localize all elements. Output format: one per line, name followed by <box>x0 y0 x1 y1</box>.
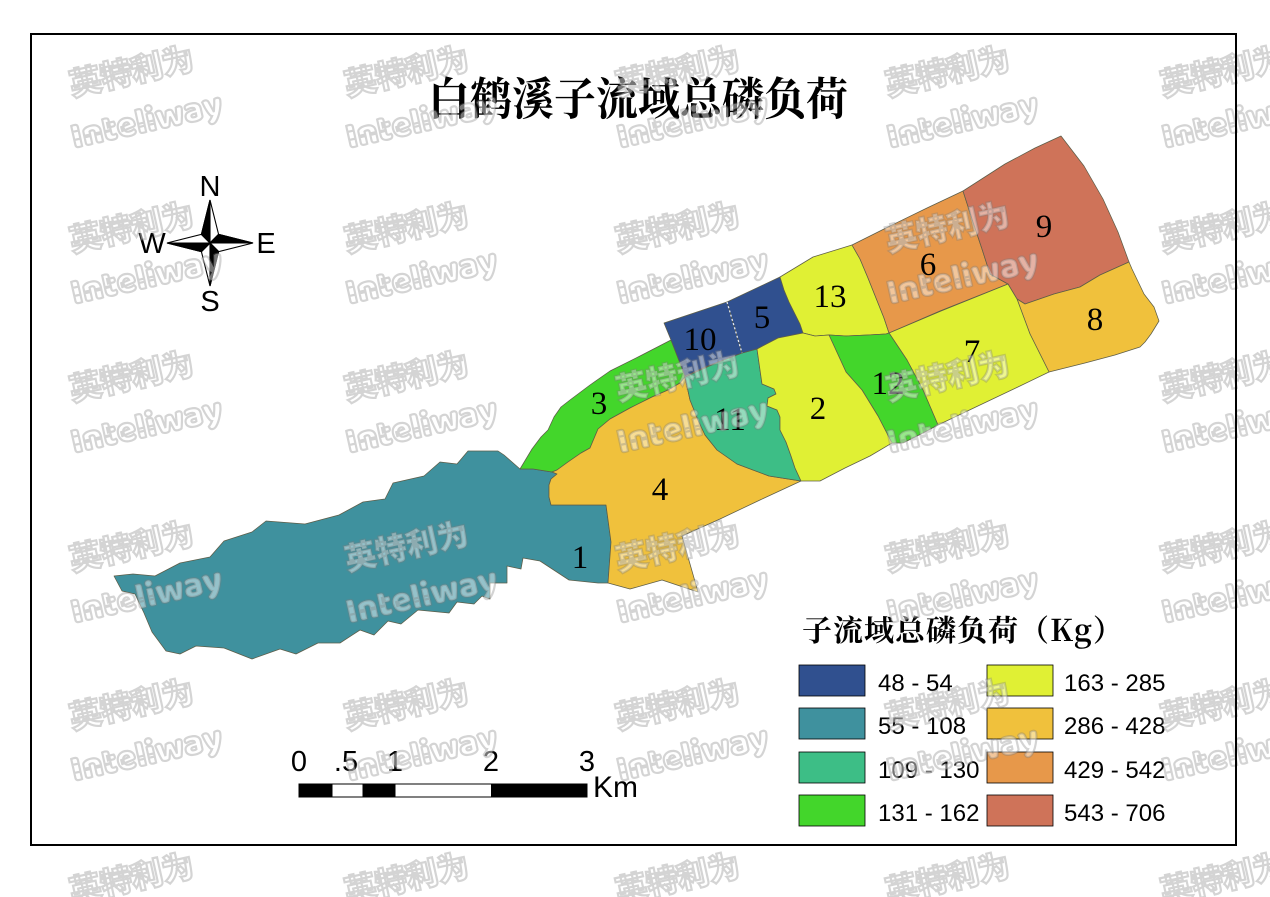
svg-text:N: N <box>200 171 221 203</box>
svg-text:1: 1 <box>572 540 589 576</box>
svg-text:543 - 706: 543 - 706 <box>1064 800 1165 827</box>
svg-text:13: 13 <box>814 279 847 315</box>
svg-text:131 - 162: 131 - 162 <box>878 800 979 827</box>
svg-text:E: E <box>256 228 275 260</box>
svg-text:163 - 285: 163 - 285 <box>1064 670 1165 697</box>
svg-text:9: 9 <box>1036 209 1053 245</box>
svg-text:286 - 428: 286 - 428 <box>1064 713 1165 740</box>
svg-text:2: 2 <box>810 391 827 427</box>
svg-text:8: 8 <box>1087 302 1104 338</box>
svg-text:4: 4 <box>652 472 669 508</box>
svg-text:0: 0 <box>291 746 307 778</box>
svg-text:3: 3 <box>591 386 608 422</box>
svg-text:S: S <box>200 286 219 318</box>
svg-text:429 - 542: 429 - 542 <box>1064 757 1165 784</box>
svg-text:10: 10 <box>684 322 717 358</box>
svg-text:5: 5 <box>754 300 771 336</box>
